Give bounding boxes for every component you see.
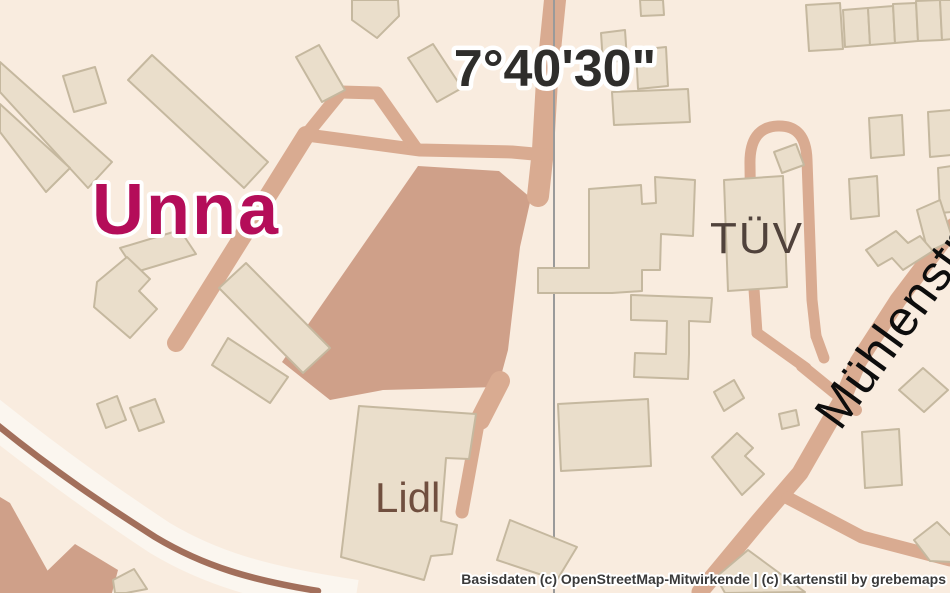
building <box>113 569 147 593</box>
building <box>97 396 126 428</box>
place-label-unna: Unna <box>92 170 280 250</box>
railway-corridor <box>0 418 338 593</box>
building <box>712 433 764 495</box>
map-attribution: Basisdaten (c) OpenStreetMap-Mitwirkende… <box>461 571 946 587</box>
building <box>558 399 651 471</box>
building <box>128 55 268 188</box>
building <box>893 3 918 43</box>
building <box>63 67 106 112</box>
building <box>212 338 288 403</box>
building <box>928 110 950 157</box>
building <box>940 0 950 40</box>
building <box>779 410 799 429</box>
building <box>352 0 399 38</box>
building <box>538 177 695 293</box>
building <box>862 429 902 488</box>
longitude-label: 7°40'30" <box>454 40 656 98</box>
building <box>843 8 870 47</box>
building <box>849 176 879 219</box>
building <box>631 295 712 379</box>
building <box>806 3 843 51</box>
building <box>130 399 164 431</box>
poi-label-tuv: TÜV <box>710 214 804 263</box>
road-east-west <box>307 135 545 155</box>
parking-lot <box>282 166 531 400</box>
building <box>774 144 804 173</box>
building <box>868 6 895 45</box>
building <box>714 380 744 411</box>
building <box>296 45 345 102</box>
building <box>916 0 942 41</box>
road-tuv-loop-leg <box>816 336 824 358</box>
paved-area <box>43 544 118 593</box>
map-canvas[interactable]: Mühlenstraße 7°40'30" Unna TÜV Lidl Basi… <box>0 0 950 593</box>
map-viewport: Mühlenstraße 7°40'30" Unna TÜV Lidl Basi… <box>0 0 950 593</box>
building <box>899 368 948 412</box>
building <box>869 115 904 158</box>
building <box>640 0 664 16</box>
poi-label-lidl: Lidl <box>375 474 440 521</box>
